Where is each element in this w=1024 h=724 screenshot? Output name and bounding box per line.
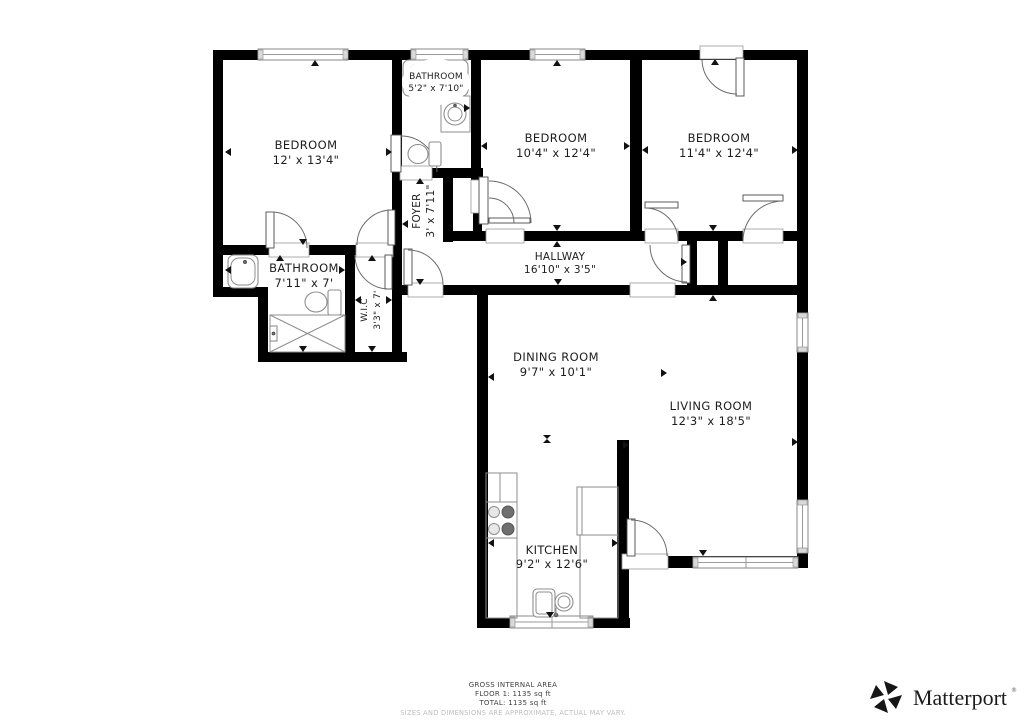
room-name: BATHROOM xyxy=(409,72,463,82)
room-name: BEDROOM xyxy=(525,131,588,145)
wall-segment xyxy=(258,287,268,362)
wall-segment xyxy=(443,168,453,242)
window xyxy=(411,49,468,60)
floor-plan-canvas: BEDROOM 12' x 13'4" BATHROOM 5'2" x 7'10… xyxy=(0,0,1024,724)
room-label-foyer: FOYER 3' x 7'11" xyxy=(411,184,437,237)
room-name: DINING ROOM xyxy=(513,350,599,364)
door-bedroom3-top-closet xyxy=(702,58,744,96)
trademark-symbol: ® xyxy=(1011,687,1017,694)
floor-plan-page: BEDROOM 12' x 13'4" BATHROOM 5'2" x 7'10… xyxy=(0,0,1024,724)
fridge-icon xyxy=(577,487,618,535)
window xyxy=(797,500,808,553)
hall-living-opening xyxy=(630,283,675,297)
room-dims: 16'10" x 3'5" xyxy=(524,264,596,276)
door-bedroom1-wic-upper xyxy=(357,210,395,245)
room-dims: 7'11" x 7' xyxy=(275,276,334,290)
room-label-bedroom-1: BEDROOM 12' x 13'4" xyxy=(273,138,340,167)
wall-segment xyxy=(797,50,808,568)
kitchen-counter xyxy=(486,473,517,618)
room-dims: 3'3" x 7' xyxy=(373,290,383,329)
kitchen-counter xyxy=(580,535,618,618)
logo-wordmark: Matterport xyxy=(913,685,1007,710)
toilet-icon xyxy=(408,142,441,166)
room-label-kitchen: KITCHEN 9'2" x 12'6" xyxy=(516,543,588,571)
room-dims: 9'2" x 12'6" xyxy=(516,557,588,571)
room-name: HALLWAY xyxy=(535,251,586,263)
wall-segment xyxy=(345,245,355,362)
stove-icon xyxy=(489,506,515,535)
door-threshold xyxy=(645,229,678,243)
door-threshold xyxy=(486,229,524,243)
room-label-hallway: HALLWAY 16'10" x 3'5" xyxy=(524,251,596,276)
wall-segment xyxy=(258,352,407,362)
matterport-logo: Matterport ® xyxy=(870,681,1017,713)
door-threshold xyxy=(400,166,432,180)
door-threshold xyxy=(743,229,783,243)
room-label-bathroom-main: BATHROOM 7'11" x 7' xyxy=(269,261,339,290)
gross-internal-area-label: GROSS INTERNAL AREA xyxy=(469,681,558,689)
room-label-wic: W.I.C 3'3" x 7' xyxy=(360,290,383,329)
room-name: KITCHEN xyxy=(526,543,579,557)
room-dims: 12'3" x 18'5" xyxy=(671,414,751,428)
window xyxy=(530,49,585,60)
room-name: W.I.C xyxy=(360,298,370,322)
door-threshold xyxy=(700,46,743,59)
room-dims: 11'4" x 12'4" xyxy=(679,146,759,160)
window xyxy=(693,557,798,568)
room-label-bedroom-2: BEDROOM 10'4" x 12'4" xyxy=(516,131,596,160)
wall-segment xyxy=(630,60,642,231)
room-name: FOYER xyxy=(411,193,423,229)
label-halo xyxy=(402,59,470,105)
room-label-bedroom-3: BEDROOM 11'4" x 12'4" xyxy=(679,131,759,160)
room-name: BEDROOM xyxy=(275,138,338,152)
door-living-balcony xyxy=(627,519,667,556)
wall-segment xyxy=(392,285,808,295)
disclaimer-text: SIZES AND DIMENSIONS ARE APPROXIMATE, AC… xyxy=(400,709,625,717)
room-dims: 12' x 13'4" xyxy=(273,153,340,167)
room-name: BATHROOM xyxy=(269,261,339,275)
wall-segment xyxy=(471,50,481,180)
room-name: LIVING ROOM xyxy=(670,399,753,413)
room-dims: 10'4" x 12'4" xyxy=(516,146,596,160)
wall-segment xyxy=(213,50,223,297)
door-threshold xyxy=(408,283,443,297)
footer: GROSS INTERNAL AREA FLOOR 1: 1135 sq ft … xyxy=(400,681,625,717)
door-threshold xyxy=(269,243,309,257)
room-label-living-room: LIVING ROOM 12'3" x 18'5" xyxy=(670,399,753,428)
window xyxy=(258,49,348,60)
toilet-icon xyxy=(305,290,341,315)
room-dims: 9'7" x 10'1" xyxy=(520,365,592,379)
matterport-pinwheel-icon xyxy=(870,681,902,713)
door-bedroom2-closet xyxy=(479,177,531,224)
vanity-sink-icon xyxy=(228,255,258,288)
total-area-value: TOTAL: 1135 sq ft xyxy=(478,699,546,707)
floor-area-value: FLOOR 1: 1135 sq ft xyxy=(475,690,551,698)
wall-segment xyxy=(718,241,728,285)
room-dims: 5'2" x 7'10" xyxy=(408,84,463,94)
room-label-dining-room: DINING ROOM 9'7" x 10'1" xyxy=(513,350,599,379)
wall-segment xyxy=(392,50,402,362)
room-dims: 3' x 7'11" xyxy=(425,184,437,237)
window xyxy=(797,313,808,352)
shower-icon xyxy=(270,315,345,352)
room-name: BEDROOM xyxy=(688,131,751,145)
